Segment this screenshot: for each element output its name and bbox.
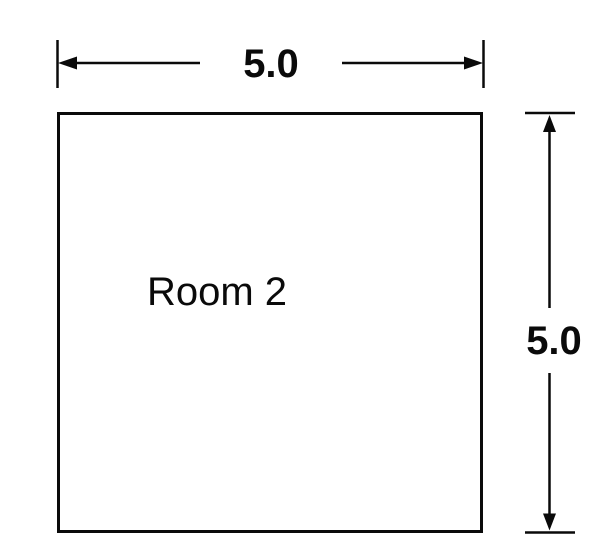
width-dimension-label: 5.0	[243, 42, 299, 86]
width-dimension: 5.0	[58, 40, 484, 88]
arrow-left-icon	[58, 57, 77, 70]
diagram-canvas: Room 2 5.0 5.0	[0, 0, 600, 558]
height-dimension-label: 5.0	[526, 319, 582, 363]
arrow-down-icon	[543, 514, 556, 531]
room-outline	[59, 114, 482, 532]
room-diagram: Room 2 5.0 5.0	[0, 0, 600, 558]
room-label: Room 2	[147, 270, 287, 314]
height-dimension: 5.0	[525, 113, 582, 533]
arrow-up-icon	[543, 115, 556, 132]
arrow-right-icon	[464, 57, 483, 70]
